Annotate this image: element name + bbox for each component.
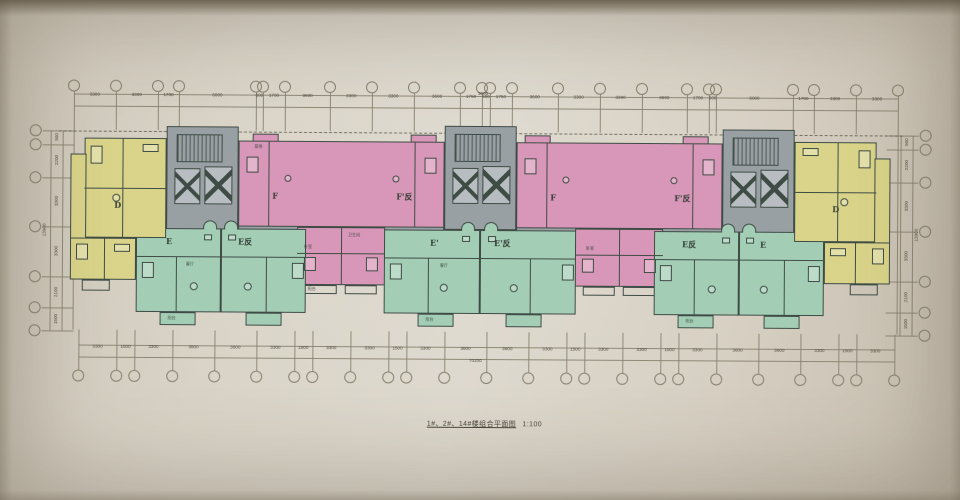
furniture-mark (204, 234, 212, 240)
elevator-shaft (204, 166, 232, 204)
photo-edge-bottom (0, 490, 960, 500)
furniture-mark (392, 175, 399, 182)
unit-label-e-mirror: E反 (238, 237, 252, 248)
furniture-mark (746, 238, 754, 244)
elevator-shaft (174, 168, 200, 204)
bow-window (224, 220, 238, 229)
balcony-outline (623, 287, 655, 296)
room-label-balcony: 阳台 (426, 318, 434, 322)
room-label-living: 客厅 (440, 264, 448, 268)
room-label-balcony: 阳台 (168, 316, 176, 320)
furniture-mark (228, 234, 236, 240)
furniture-mark (114, 244, 130, 252)
bow-window (484, 222, 498, 231)
room-label-balcony: 阳台 (686, 319, 694, 323)
staircase (455, 134, 501, 162)
furniture-mark (830, 248, 846, 256)
staircase (733, 138, 779, 166)
drawing-caption: 1#、2#、14#楼组合平面图 1:100 (397, 418, 572, 429)
furniture-mark (872, 248, 884, 264)
furniture-mark (292, 263, 304, 279)
unit-label-f: F (272, 191, 278, 201)
balcony-outline (82, 280, 110, 291)
photo-edge-right (950, 0, 960, 500)
furniture-mark (722, 237, 730, 243)
unit-label-e-prime: E' (430, 238, 439, 248)
furniture-mark (190, 282, 198, 290)
furniture-mark (91, 146, 103, 164)
furniture-mark (562, 177, 569, 184)
floor-plan-drawing: 3300330017006000600170036003300330036001… (0, 0, 960, 500)
unit-label-e-prime-mirror: E'反 (494, 238, 511, 249)
bow-window (721, 223, 735, 232)
furniture-mark (702, 159, 714, 175)
balcony-outline (850, 284, 878, 295)
furniture-mark (424, 158, 436, 174)
furniture-mark (76, 244, 88, 260)
furniture-mark (808, 266, 820, 282)
furniture-mark (284, 175, 291, 182)
balcony-outline (345, 285, 377, 294)
bay-window (253, 134, 279, 142)
furniture-mark (644, 259, 656, 273)
room-label-living: 客厅 (186, 262, 194, 266)
photo-edge-left (0, 0, 12, 500)
furniture-mark (440, 284, 448, 292)
unit-label-d: D (832, 204, 839, 214)
room-label-bedroom: 卧室 (586, 247, 594, 251)
staircase (177, 134, 223, 162)
furniture-mark (562, 265, 574, 281)
furniture-mark (760, 286, 768, 294)
furniture-mark (670, 177, 677, 184)
elevator-shaft (730, 172, 756, 208)
furniture-mark (582, 259, 594, 273)
furniture-mark (708, 285, 716, 293)
furniture-mark (510, 284, 518, 292)
caption-scale: 1:100 (522, 421, 542, 428)
furniture-mark (366, 257, 378, 271)
unit-label-e: E (760, 240, 766, 250)
unit-label-f-prime-mirror: F'反 (396, 191, 412, 202)
unit-label-d: D (114, 200, 121, 210)
furniture-mark (803, 148, 819, 156)
elevator-shaft (760, 170, 788, 208)
room-label-bath: 卫生间 (348, 233, 360, 237)
room-label-balcony: 阳台 (308, 287, 316, 291)
balcony (764, 316, 800, 329)
bow-window (203, 220, 217, 229)
furniture-mark (244, 283, 252, 291)
elevator-shaft (482, 166, 510, 204)
elevator-shaft (452, 168, 478, 204)
furniture-mark (142, 262, 154, 278)
unit-label-f: F (550, 192, 556, 202)
furniture-mark (524, 158, 536, 174)
balcony (418, 314, 454, 327)
furniture-mark (390, 263, 402, 279)
furniture-mark (246, 157, 258, 173)
dim-value-top-extra: 3000 (478, 91, 488, 96)
bow-window (742, 224, 756, 233)
furniture-mark (304, 257, 316, 271)
bay-window (683, 136, 709, 144)
unit-label-e-mirror: E反 (682, 239, 696, 250)
balcony (160, 312, 196, 325)
balcony (678, 315, 714, 328)
furniture-mark (660, 265, 672, 281)
unit-label-f-prime-mirror: F'反 (674, 193, 690, 204)
caption-title: 1#、2#、14#楼组合平面图 (427, 421, 516, 429)
balcony (506, 314, 542, 327)
room-label-bedroom: 卧室 (304, 245, 312, 249)
furniture-mark (840, 198, 848, 206)
furniture-mark (462, 236, 470, 242)
photo-edge-top (0, 0, 960, 16)
balcony (246, 313, 282, 326)
unit-label-e: E (166, 236, 172, 246)
bow-window (461, 222, 475, 231)
furniture-mark (143, 144, 159, 152)
photo-background: 3300330017006000600170036003300330036001… (0, 0, 960, 500)
balcony-outline (583, 287, 615, 296)
furniture-mark (859, 150, 871, 168)
room-label-kitchen: 厨房 (255, 145, 263, 149)
